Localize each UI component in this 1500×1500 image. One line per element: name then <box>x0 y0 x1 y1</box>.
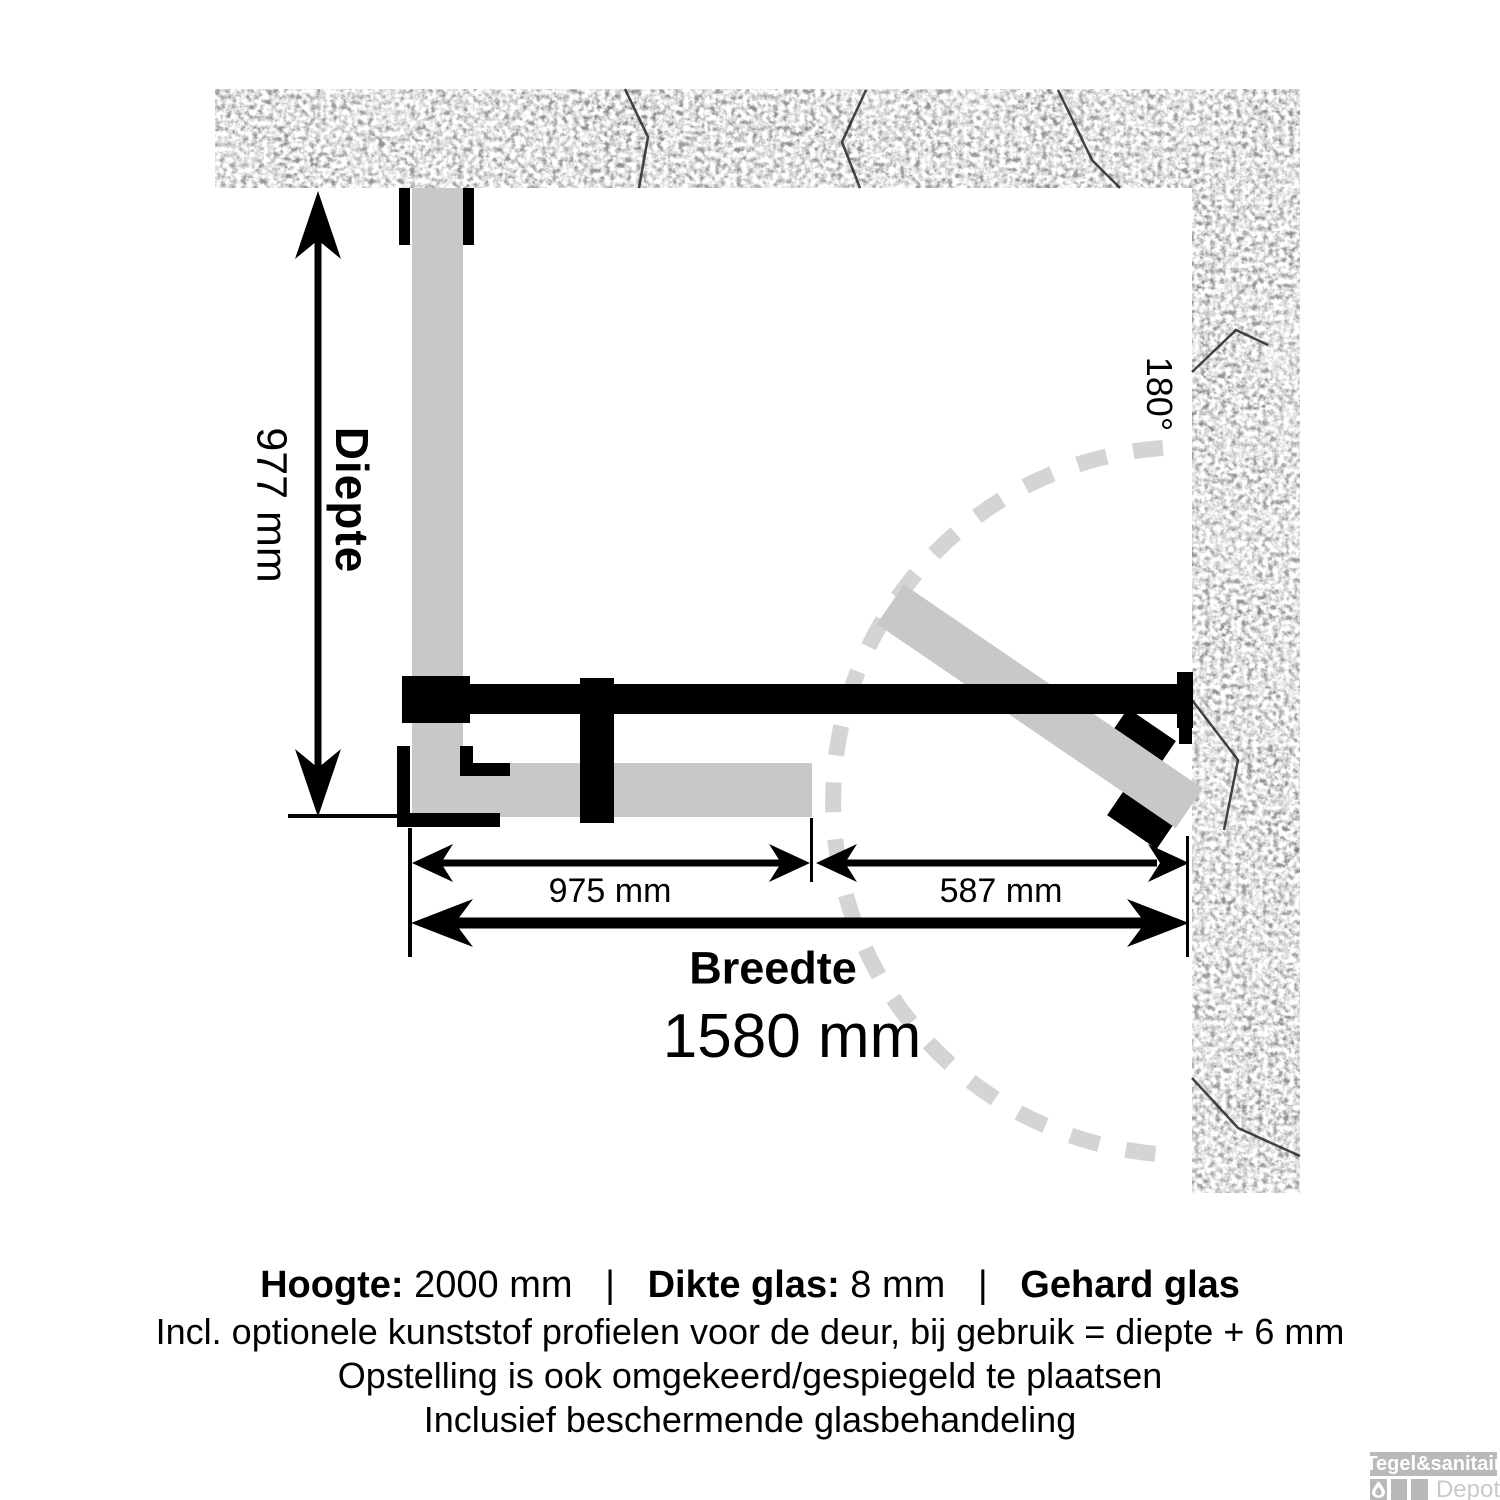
depth-arrow-shaft <box>315 230 322 780</box>
width-label: Breedte <box>689 946 857 991</box>
separator: | <box>978 1264 988 1308</box>
hinge-wall-mount <box>1179 728 1192 744</box>
depth-tick <box>288 814 408 818</box>
width-value: 1580 mm <box>663 1006 921 1068</box>
hoogte-value: 2000 mm <box>414 1264 572 1306</box>
dikte-value: 8 mm <box>850 1264 945 1306</box>
swing-angle-label: 180° <box>1141 357 1177 431</box>
wall-profile-left <box>399 188 410 245</box>
watermark-logo-row: Depot <box>1370 1479 1500 1500</box>
depth-value: 977 mm <box>250 427 293 582</box>
extension-line-right <box>1186 836 1189 957</box>
tile-icon <box>1391 1479 1408 1500</box>
dikte-label: Dikte glas: <box>648 1264 840 1306</box>
separator: | <box>605 1264 615 1308</box>
total-width-arrow-shaft <box>455 918 1147 929</box>
specs-note-2: Opstelling is ook omgekeerd/gespiegeld t… <box>0 1355 1500 1396</box>
depth-label: Diepte <box>329 427 375 574</box>
watermark-sub: Depot <box>1436 1478 1500 1500</box>
gehard-glas-label: Gehard glas <box>1020 1264 1240 1306</box>
specs-note-3: Inclusief beschermende glasbehandeling <box>0 1399 1500 1440</box>
specs-note-1: Incl. optionele kunststof profielen voor… <box>0 1311 1500 1352</box>
bar-glass-clamp <box>402 676 470 723</box>
wall-profile-right <box>463 188 474 245</box>
stabilizer-bar <box>462 684 1178 714</box>
watermark-brand: Tegel&sanitair <box>1365 1453 1500 1476</box>
fixed-panel-width-label: 975 mm <box>549 874 672 908</box>
shower-dimension-diagram: Diepte 977 mm 180° 975 mm 587 mm Breedte… <box>0 0 1500 1500</box>
specs-line-main: Hoogte: 2000 mm | Dikte glas: 8 mm | Geh… <box>0 1264 1500 1308</box>
watermark: Tegel&sanitair <box>1370 1452 1497 1476</box>
door-width-label: 587 mm <box>940 874 1063 908</box>
extension-line-middle <box>810 818 813 882</box>
hoogte-label: Hoogte: <box>260 1264 404 1306</box>
extension-line-left <box>408 828 412 957</box>
door-width-arrow-shaft <box>845 860 1157 867</box>
corner-bracket <box>460 746 510 776</box>
tile-icon <box>1411 1479 1428 1500</box>
support-profile <box>580 678 614 823</box>
droplet-icon <box>1370 1479 1387 1500</box>
bar-wall-end-cap <box>1177 672 1193 728</box>
fixed-width-arrow-shaft <box>440 860 785 867</box>
